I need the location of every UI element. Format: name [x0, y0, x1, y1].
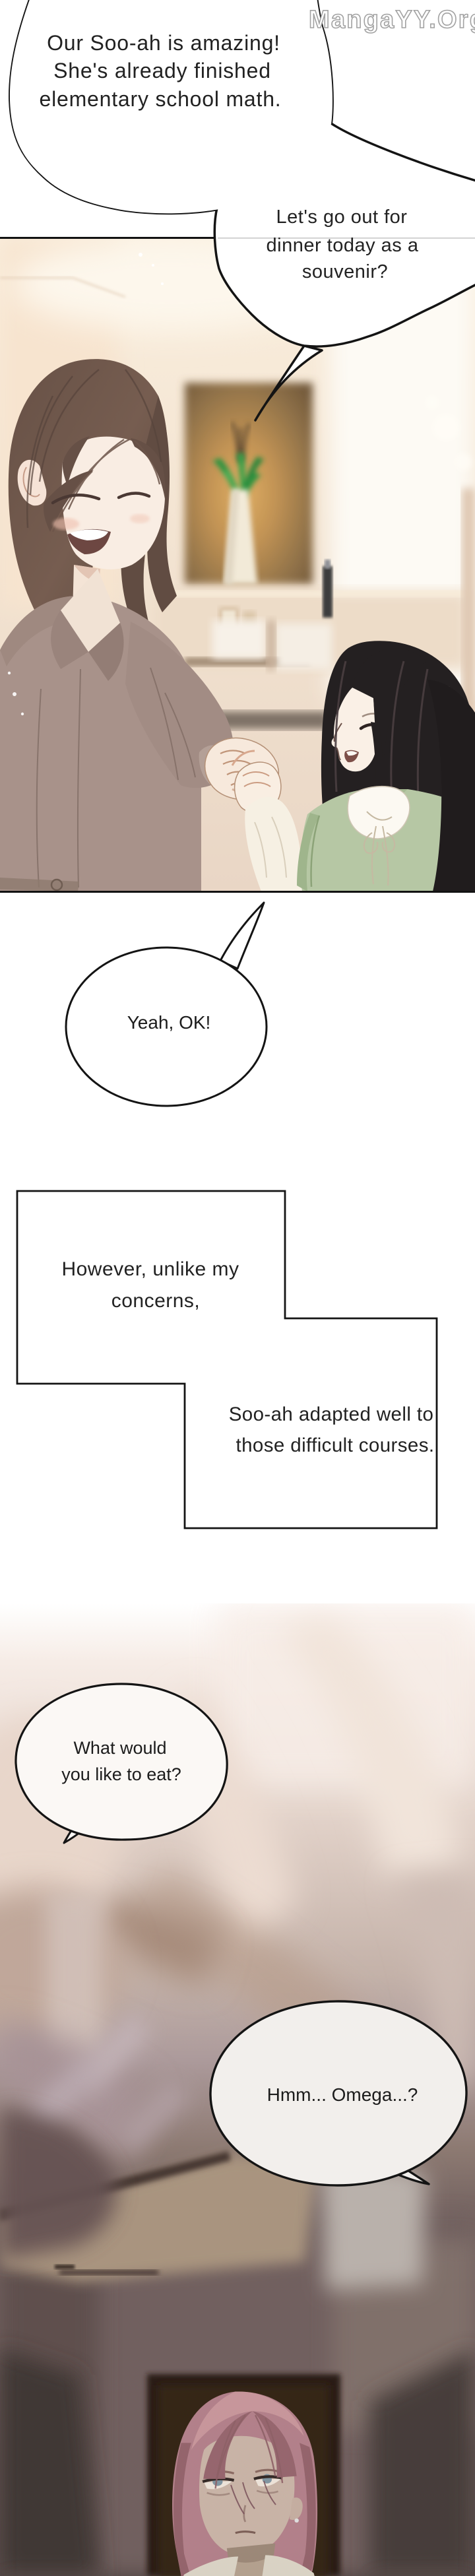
svg-text:those difficult courses.: those difficult courses.: [236, 1434, 435, 1456]
svg-text:She's already finished: She's already finished: [53, 59, 271, 82]
svg-text:What would: What would: [73, 1738, 166, 1758]
svg-text:Soo-ah adapted well to: Soo-ah adapted well to: [229, 1403, 434, 1425]
svg-text:Let's go out for: Let's go out for: [276, 207, 408, 228]
svg-text:elementary school math.: elementary school math.: [39, 87, 281, 111]
svg-text:However, unlike my: However, unlike my: [61, 1258, 239, 1280]
svg-text:Hmm... Omega...?: Hmm... Omega...?: [267, 2084, 418, 2105]
svg-text:you like to eat?: you like to eat?: [61, 1764, 181, 1784]
svg-text:souvenir?: souvenir?: [302, 261, 388, 282]
svg-text:MangaYY.Org: MangaYY.Org: [309, 6, 475, 34]
svg-text:dinner today as a: dinner today as a: [267, 235, 419, 256]
svg-text:Our Soo-ah is amazing!: Our Soo-ah is amazing!: [47, 31, 280, 55]
svg-text:Yeah, OK!: Yeah, OK!: [127, 1012, 211, 1033]
svg-text:concerns,: concerns,: [111, 1290, 201, 1312]
